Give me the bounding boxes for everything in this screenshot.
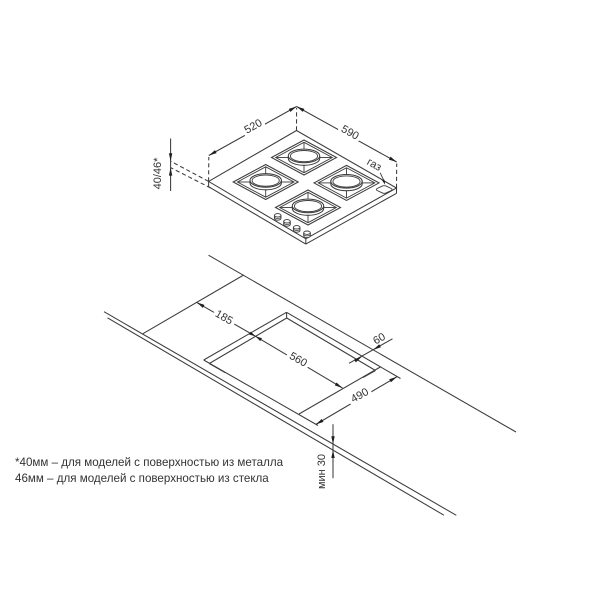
svg-text:60: 60 xyxy=(371,331,388,347)
svg-text:46мм – для моделей с поверхнос: 46мм – для моделей с поверхностью из сте… xyxy=(15,472,269,485)
svg-text:185: 185 xyxy=(213,308,235,327)
svg-text:520: 520 xyxy=(243,117,265,136)
svg-text:мин 30: мин 30 xyxy=(316,454,328,489)
svg-text:40/46*: 40/46* xyxy=(152,157,164,190)
svg-text:490: 490 xyxy=(349,386,371,405)
svg-text:*40мм – для моделей с поверхно: *40мм – для моделей с поверхностью из ме… xyxy=(15,456,284,469)
